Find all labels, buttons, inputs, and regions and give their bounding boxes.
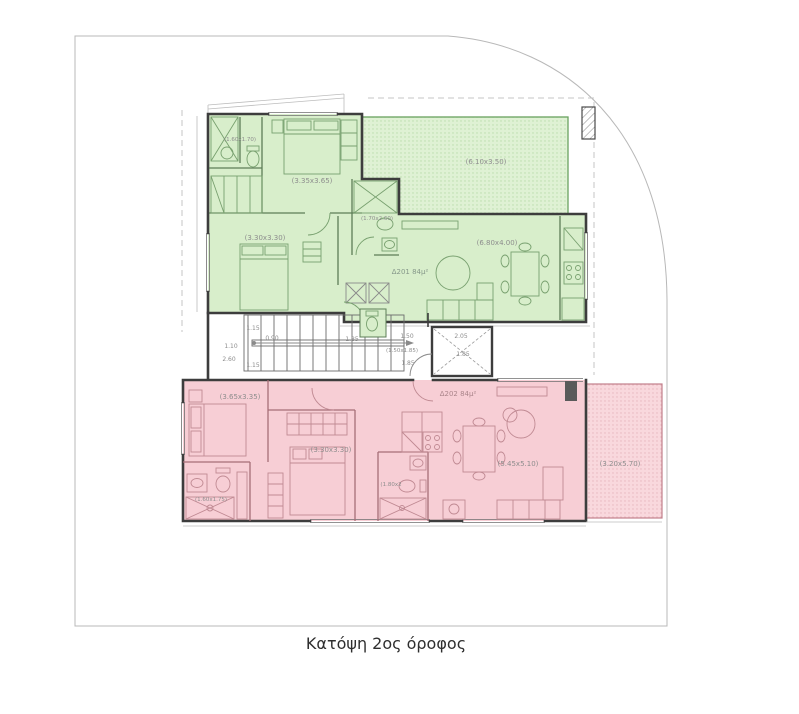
dim-elevator-width: 2.05 [454, 333, 468, 340]
pink-apartment: (3.65x3.35) (3.30x3.30) (1.60x1.75) (1.8… [182, 379, 663, 527]
room-label-veranda: (3.20x5.70) [600, 460, 641, 468]
dim-stair-flight: 1.10 [224, 343, 238, 350]
dim-lobby-width: 1.50 [400, 333, 414, 340]
room-label-terrace: (6.10x3.50) [466, 158, 507, 166]
drawing-title: Κατόψη 2ος όροφος [306, 634, 466, 653]
dim-stair-width-bottom: 1.15 [246, 362, 260, 369]
dim-wc: 1.85 [345, 336, 359, 343]
room-label-bath-small: (1.60x1.75) [195, 497, 227, 503]
wc-floor [360, 309, 386, 337]
room-label-living: (6.80x4.00) [477, 239, 518, 247]
dim-stair-length: 2.60 [222, 356, 236, 363]
column [582, 107, 595, 139]
room-label-living: (5.45x5.10) [498, 460, 539, 468]
veranda-floor [586, 384, 662, 518]
dim-stair-mid: 0.90 [265, 335, 279, 342]
room-label-bedroom-2: (3.30x3.30) [311, 446, 352, 454]
room-label-bedroom-2: (3.30x3.30) [245, 234, 286, 242]
column [565, 381, 577, 401]
green-apartment: (1.60x1.70) (3.35x3.65) (3.30x3.30) (1.7… [207, 113, 591, 327]
floor-plan-canvas: (1.60x1.70) (3.35x3.65) (3.30x3.30) (1.7… [0, 0, 799, 714]
room-label-bath-main: (1.70x2.60) [361, 216, 393, 222]
dim-lobby-size: (1.50x1.85) [386, 348, 418, 354]
room-label-bedroom-master: (3.35x3.65) [292, 177, 333, 185]
core-wc [360, 309, 386, 337]
room-label-bath-main: (1.80x2 [380, 482, 401, 488]
dim-lobby-depth: 1.85 [401, 360, 415, 367]
apartment-id-label: Δ202 84μ² [440, 390, 477, 398]
dim-elevator-depth: 1.85 [456, 351, 470, 358]
apartment-id-label: Δ201 84μ² [392, 268, 429, 276]
arrow-start-dot [252, 341, 256, 345]
room-label-bath-small: (1.60x1.70) [224, 137, 256, 143]
dim-stair-width-top: 1.15 [246, 325, 260, 332]
arrowhead [406, 340, 414, 346]
room-label-bedroom-master: (3.65x3.35) [220, 393, 261, 401]
